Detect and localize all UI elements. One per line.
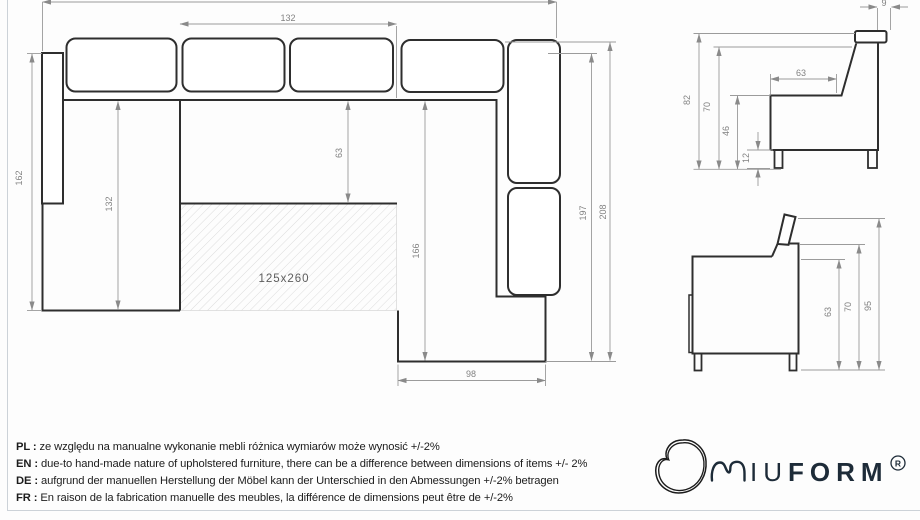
side2-leg-back: [790, 354, 797, 371]
plan-view: 132 63 132 162 166 197 208 98 125x260: [14, 2, 616, 386]
logo-text-light: IU: [750, 457, 788, 487]
side2-leg-front: [695, 354, 702, 371]
side-cushion-1: [508, 40, 560, 183]
bed-surface-hatch: [181, 204, 397, 311]
note-en-text: due-to hand-made nature of upholstered f…: [41, 458, 587, 470]
dim-plan-left-depth: 132: [104, 196, 114, 211]
back-cushion-4: [402, 40, 504, 92]
note-pl-text: ze względu na manualne wykonanie mebli r…: [40, 441, 440, 453]
dim-side1-total-height: 82: [682, 95, 692, 105]
back-cushion-2: [183, 39, 285, 92]
note-de-text: aufgrund der manuellen Herstellung der M…: [41, 475, 559, 487]
side-view-back: 63 70 95: [689, 215, 885, 371]
note-de-label: DE :: [16, 475, 38, 487]
note-pl: PL : ze względu na manualne wykonanie me…: [16, 439, 656, 456]
note-de: DE : aufgrund der manuellen Herstellung …: [16, 473, 656, 490]
logo-bean-icon: [656, 440, 706, 493]
dim-plan-chaise-width: 98: [466, 369, 476, 379]
dim-plan-top-width: 132: [280, 13, 295, 23]
dim-plan-inner-length: 166: [411, 243, 421, 258]
dim-side1-headrest-depth: 9: [881, 0, 886, 8]
bed-area-label: 125x260: [258, 273, 309, 285]
side1-leg-front: [775, 150, 783, 168]
note-pl-label: PL :: [16, 441, 37, 453]
note-en-label: EN :: [16, 458, 38, 470]
back-cushion-3: [290, 39, 393, 92]
dim-side2-headrest-up-height: 95: [863, 301, 873, 311]
dim-side2-back-height: 70: [843, 302, 853, 312]
side2-dimensions: [798, 219, 885, 371]
dim-plan-left-height: 162: [14, 170, 24, 185]
note-fr-text: En raison de la fabrication manuelle des…: [40, 492, 512, 504]
logo-wordmark: IUFORM: [750, 457, 889, 487]
back-cushion-1: [67, 39, 177, 92]
note-fr: FR : En raison de la fabrication manuell…: [16, 490, 656, 507]
dim-side1-back-height: 70: [702, 102, 712, 112]
side2-headrest-flap: [778, 215, 796, 245]
note-en: EN : due-to hand-made nature of upholste…: [16, 456, 656, 473]
logo-m-squiggle: [712, 462, 745, 481]
side1-body-outline: [771, 31, 887, 168]
registered-trademark-icon: R: [891, 456, 905, 470]
side2-arm-panel: [689, 295, 693, 353]
svg-text:R: R: [895, 459, 901, 469]
dim-plan-seat-depth: 63: [334, 148, 344, 158]
dim-side2-arm-height: 63: [823, 307, 833, 317]
dim-plan-right-length: 197: [578, 205, 588, 220]
dim-side1-seat-height: 46: [721, 126, 731, 136]
logo-text-bold: FORM: [788, 457, 889, 487]
dim-plan-total-length: 208: [598, 204, 608, 219]
dim-side1-seat-depth: 63: [796, 68, 806, 78]
side1-leg-back: [868, 150, 877, 168]
side-cushion-2: [508, 188, 560, 295]
miuform-logo: IUFORM R: [650, 436, 912, 500]
note-fr-label: FR :: [16, 492, 37, 504]
tolerance-notes: PL : ze względu na manualne wykonanie me…: [16, 439, 656, 507]
dim-side1-leg-height: 12: [741, 153, 751, 163]
side-view-front: 82 70 46 12 63 9: [682, 0, 908, 186]
side2-body-outline: [689, 215, 799, 371]
